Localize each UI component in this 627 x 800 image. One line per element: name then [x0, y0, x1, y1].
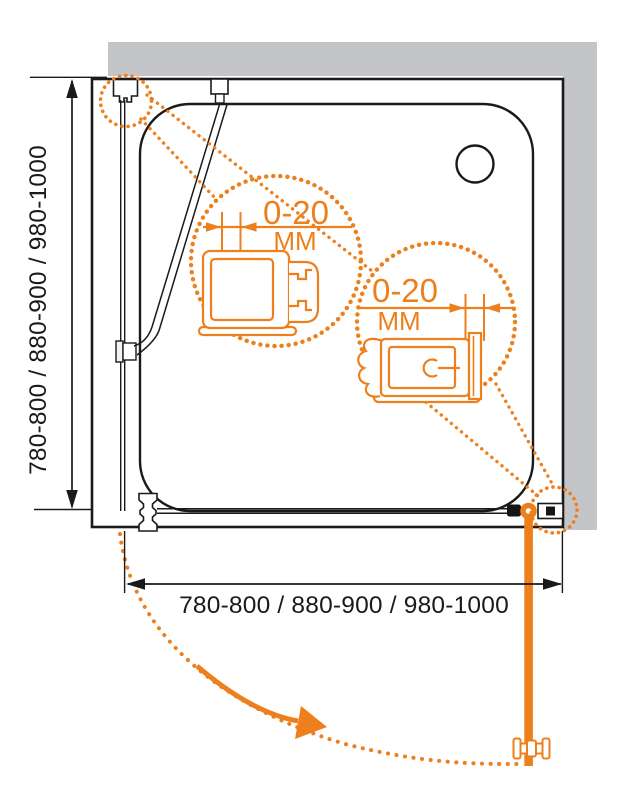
glass-bracket	[116, 341, 123, 362]
door-open	[514, 503, 564, 766]
leader-line-4	[496, 384, 554, 487]
dim-arrow-down	[66, 490, 78, 509]
door-knob	[139, 494, 157, 532]
hinge-profile-block	[546, 507, 555, 516]
swing-arrow-icon	[197, 666, 298, 721]
detail-view-1: 0-20 ММ	[199, 194, 352, 335]
diagram-canvas: 780-800 / 880-900 / 980-1000 780-800 / 8…	[0, 0, 627, 800]
drain-circle	[457, 146, 494, 183]
swing-arrow-head	[295, 706, 327, 739]
wall-profile-top	[114, 79, 138, 102]
shower-enclosure-plan-diagram: 780-800 / 880-900 / 980-1000 780-800 / 8…	[0, 0, 627, 800]
width-dimension-label: 780-800 / 880-900 / 980-1000	[179, 592, 509, 619]
open-door-handle	[514, 739, 550, 759]
strut-wall-mount-foot	[216, 94, 225, 103]
door-closed	[139, 494, 521, 532]
fixed-glass-panel	[114, 79, 138, 511]
height-dimension-label: 780-800 / 880-900 / 980-1000	[25, 145, 52, 475]
strut-wall-mount	[211, 79, 228, 94]
enclosure-frame	[92, 79, 563, 527]
walls	[108, 42, 597, 530]
leader-line-2	[147, 95, 372, 271]
open-door-glass	[524, 514, 533, 766]
dim-arrow-up	[66, 79, 78, 98]
detail-2-value: 0-20	[372, 272, 438, 309]
height-dimension: 780-800 / 880-900 / 980-1000	[25, 77, 107, 509]
width-dimension: 780-800 / 880-900 / 980-1000	[125, 531, 563, 619]
detail-2-unit: ММ	[377, 306, 420, 336]
door-end-cap	[507, 505, 521, 517]
profile-section-1	[199, 251, 318, 335]
door-swing	[120, 534, 517, 764]
wall-right	[563, 42, 597, 530]
wall-top	[108, 42, 597, 76]
dim-arrow-right	[543, 578, 562, 590]
dim-arrow-left	[126, 578, 145, 590]
detail-callouts	[101, 76, 578, 534]
leader-line-3	[421, 398, 538, 496]
callout-circle-wall-profile	[101, 76, 152, 127]
profile-section-2	[358, 333, 481, 402]
detail-view-2: 0-20 ММ	[358, 272, 513, 402]
